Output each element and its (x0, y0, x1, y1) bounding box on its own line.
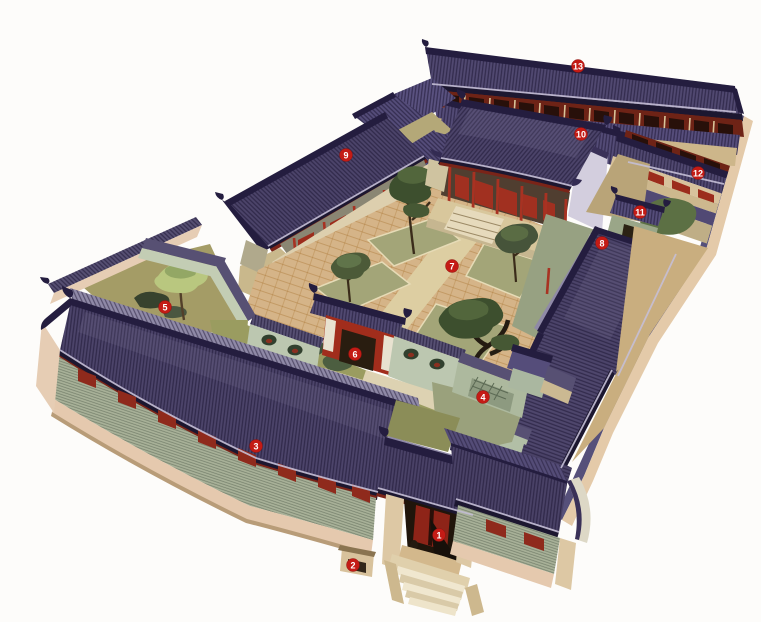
svg-text:4: 4 (480, 392, 485, 402)
svg-text:8: 8 (599, 238, 604, 248)
svg-text:7: 7 (449, 261, 454, 271)
svg-text:2: 2 (350, 560, 355, 570)
svg-text:13: 13 (573, 61, 583, 71)
svg-text:12: 12 (693, 168, 703, 178)
svg-text:6: 6 (352, 349, 357, 359)
svg-text:3: 3 (253, 441, 258, 451)
svg-text:1: 1 (436, 530, 441, 540)
svg-text:11: 11 (635, 207, 645, 217)
svg-text:10: 10 (576, 129, 586, 139)
svg-text:5: 5 (162, 302, 167, 312)
svg-text:9: 9 (343, 150, 348, 160)
